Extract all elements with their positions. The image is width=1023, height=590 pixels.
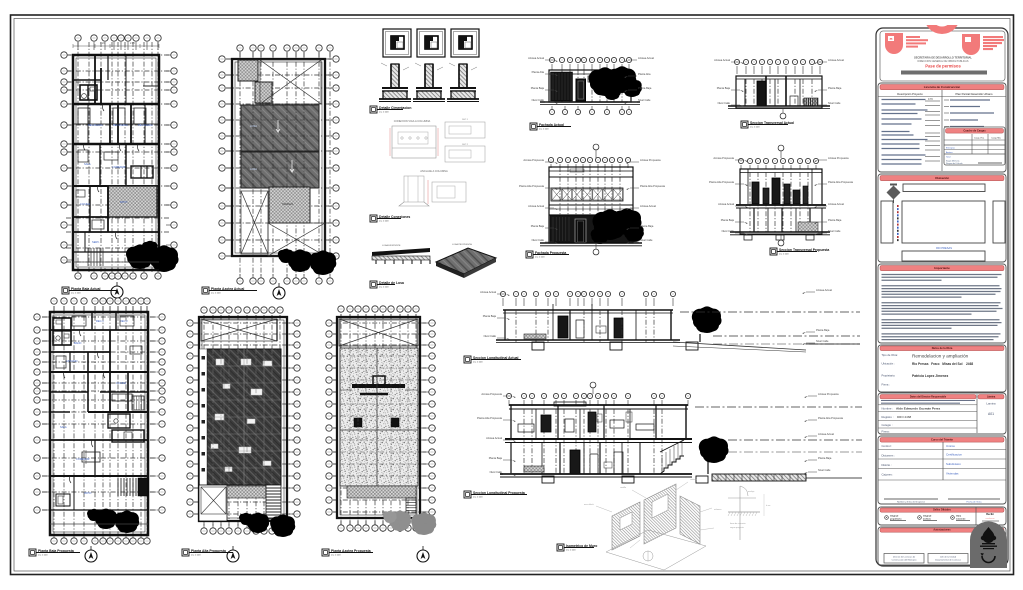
- svg-text:Lamina: Lamina: [986, 402, 996, 406]
- svg-text:Importante: Importante: [934, 266, 950, 270]
- svg-text:Detalle Conexiones: Detalle Conexiones: [379, 215, 410, 219]
- svg-text:firme de concreto: firme de concreto: [730, 522, 746, 525]
- svg-text:esc 1:100: esc 1:100: [331, 555, 341, 557]
- svg-text:LOSA EXISTENTE: LOSA EXISTENTE: [382, 244, 401, 247]
- svg-text:refuerzo: refuerzo: [714, 509, 722, 511]
- svg-text:Colegio :: Colegio :: [882, 423, 893, 427]
- svg-text:Total: Total: [946, 156, 951, 159]
- svg-text:Aldo Edmundo Guzmán Perez: Aldo Edmundo Guzmán Perez: [896, 407, 941, 411]
- svg-text:Patricia Lopez Jimenez: Patricia Lopez Jimenez: [912, 374, 949, 378]
- svg-text:RECAMARA: RECAMARA: [138, 123, 153, 127]
- svg-text:Azotea Propuesta: Azotea Propuesta: [713, 156, 734, 160]
- svg-text:muro block: muro block: [584, 504, 594, 506]
- svg-text:CONEXION VIGA A COLUMNA: CONEXION VIGA A COLUMNA: [394, 119, 431, 123]
- svg-text:esc 1:100: esc 1:100: [379, 112, 389, 114]
- svg-text:esc 1:100: esc 1:100: [379, 287, 389, 289]
- svg-text:COCINA: COCINA: [116, 381, 126, 385]
- svg-text:Dictamen :: Dictamen :: [882, 454, 896, 458]
- svg-text:SALA: SALA: [60, 425, 67, 429]
- svg-text:Sellos Oficiales: Sellos Oficiales: [933, 509, 951, 512]
- svg-text:Datos de la Obra: Datos de la Obra: [932, 346, 953, 350]
- svg-text:Unicos: Unicos: [946, 444, 955, 448]
- svg-text:Seccion Longitudinal Propuesta: Seccion Longitudinal Propuesta: [473, 491, 525, 495]
- svg-text:3.20: 3.20: [100, 42, 105, 45]
- svg-text:Azotea: Azotea: [946, 151, 953, 154]
- svg-text:Tipo de Obra:: Tipo de Obra:: [882, 353, 899, 357]
- svg-text:esc 1:100: esc 1:100: [535, 257, 545, 259]
- svg-text:Planta Alta: Planta Alta: [532, 70, 545, 74]
- svg-text:Seccion Transversal Propuesta: Seccion Transversal Propuesta: [779, 248, 829, 252]
- svg-text:0.70: 0.70: [928, 98, 933, 101]
- svg-text:esc 1:100: esc 1:100: [38, 555, 48, 557]
- svg-text:Construccion del Municipio: Construccion del Municipio: [892, 559, 918, 562]
- svg-text:Azotea Actual: Azotea Actual: [486, 436, 502, 440]
- svg-text:Nivel Calle: Nivel Calle: [490, 470, 503, 474]
- svg-text:Nivel Calle: Nivel Calle: [718, 101, 731, 105]
- svg-text:LOSA PROPUESTA: LOSA PROPUESTA: [452, 243, 472, 246]
- svg-text:Planta Alta Propuesta: Planta Alta Propuesta: [640, 184, 666, 188]
- svg-text:existente: existente: [956, 518, 966, 521]
- svg-text:Nivel Calle: Nivel Calle: [532, 98, 545, 102]
- svg-text:Lámina: Lámina: [987, 395, 996, 398]
- svg-text:Pase de permisos: Pase de permisos: [925, 64, 961, 69]
- svg-text:Plan Parcial Desarrollo Urbano: Plan Parcial Desarrollo Urbano: [956, 92, 993, 96]
- svg-text:Carga Viva: Carga Viva: [974, 137, 985, 140]
- svg-text:archivo: archivo: [923, 519, 931, 521]
- svg-text:esc 1:100: esc 1:100: [473, 497, 483, 499]
- svg-text:Original: Original: [923, 516, 932, 518]
- svg-text:SERV.: SERV.: [92, 240, 100, 244]
- svg-text:Planta Baja: Planta Baja: [721, 218, 735, 222]
- svg-text:Obra: Obra: [956, 516, 962, 518]
- svg-text:Nivel Calle: Nivel Calle: [722, 229, 735, 233]
- svg-text:Planta Baja: Planta Baja: [531, 86, 545, 90]
- svg-text:esc 1:100: esc 1:100: [539, 129, 549, 131]
- svg-text:RECAMARA: RECAMARA: [88, 123, 103, 127]
- svg-text:esc 1:100: esc 1:100: [566, 550, 576, 552]
- svg-text:esc 1:100: esc 1:100: [379, 221, 389, 223]
- svg-text:esc 1:100: esc 1:100: [191, 555, 201, 557]
- svg-text:Planta Azotea Actual: Planta Azotea Actual: [211, 287, 244, 291]
- svg-text:DET.2: DET.2: [462, 144, 469, 146]
- svg-text:A01: A01: [988, 412, 994, 416]
- svg-text:PATIO: PATIO: [84, 491, 91, 495]
- svg-text:Azotea Propuesta: Azotea Propuesta: [640, 158, 661, 162]
- svg-text:Fecha de Visita: Fecha de Visita: [966, 501, 982, 504]
- svg-text:esc 1:100: esc 1:100: [473, 362, 483, 364]
- svg-text:SALA: SALA: [84, 162, 91, 166]
- svg-text:esc 1:100: esc 1:100: [71, 293, 81, 295]
- svg-text:TERRAZA: TERRAZA: [282, 203, 294, 206]
- svg-text:Azotea Actual: Azotea Actual: [828, 58, 844, 62]
- svg-text:Planta Baja: Planta Baja: [717, 86, 731, 90]
- svg-text:esc 1:100: esc 1:100: [779, 254, 789, 256]
- svg-text:Distrito :: Distrito :: [882, 463, 892, 467]
- svg-text:Azotea Actual: Azotea Actual: [818, 432, 834, 436]
- svg-text:ANCLAJE A COLUMNA: ANCLAJE A COLUMNA: [420, 169, 448, 173]
- svg-text:SECRETARIA DE DESARROLLO TERRI: SECRETARIA DE DESARROLLO TERRITORIAL: [914, 56, 972, 60]
- svg-text:Fachada Propuesta: Fachada Propuesta: [535, 251, 566, 255]
- svg-text:Viviendas: Viviendas: [946, 472, 959, 476]
- svg-text:Azotea Actual: Azotea Actual: [828, 202, 844, 206]
- svg-text:esc 1:100: esc 1:100: [750, 127, 760, 129]
- svg-text:LOSA: LOSA: [250, 167, 257, 171]
- svg-text:Nivel Calle: Nivel Calle: [828, 229, 841, 233]
- svg-text:Planta Alta Propuesta: Planta Alta Propuesta: [709, 180, 735, 184]
- svg-text:Original: Original: [890, 516, 899, 518]
- svg-text:Nivel Calle: Nivel Calle: [484, 334, 497, 338]
- svg-text:Azotea Actual: Azotea Actual: [640, 204, 656, 208]
- svg-text:Planta Alta Propuesta: Planta Alta Propuesta: [519, 184, 545, 188]
- svg-text:Seccion Transversal Actual: Seccion Transversal Actual: [750, 121, 794, 125]
- svg-text:Planta Baja: Planta Baja: [638, 86, 652, 90]
- svg-text:Detalle de Losa: Detalle de Losa: [379, 281, 404, 285]
- svg-text:Azotea Propuesta: Azotea Propuesta: [481, 392, 502, 396]
- svg-text:castillo: castillo: [620, 486, 627, 489]
- svg-text:Autorizaciones: Autorizaciones: [933, 529, 951, 532]
- svg-text:Planta Alta Propuesta: Planta Alta Propuesta: [818, 416, 844, 420]
- svg-text:Respon del Calculo: Respon del Calculo: [946, 163, 962, 165]
- svg-text:Planta Alta Propuesta: Planta Alta Propuesta: [191, 549, 226, 553]
- svg-text:Nivel Calle: Nivel Calle: [818, 468, 831, 472]
- svg-text:DRO 2468: DRO 2468: [897, 415, 912, 419]
- svg-text:Recibí: Recibí: [986, 513, 994, 516]
- svg-text:Nivel Calle: Nivel Calle: [532, 238, 545, 242]
- svg-text:h var: h var: [766, 505, 771, 507]
- svg-text:Departamental de Licencias: Departamental de Licencias: [935, 559, 961, 562]
- svg-text:Ubicación: Ubicación: [935, 176, 950, 180]
- svg-text:ESTUDIO: ESTUDIO: [66, 359, 78, 363]
- svg-text:Planta Azotea Propuesta: Planta Azotea Propuesta: [331, 549, 371, 553]
- svg-text:REC.2: REC.2: [120, 319, 128, 323]
- svg-text:Descripción Proyecto: Descripción Proyecto: [897, 92, 923, 96]
- svg-text:Rio Presas Fracc Misas del: Rio Presas Fracc Misas del Sol 2468: [912, 362, 973, 366]
- svg-text:Licencia de Construccion: Licencia de Construccion: [924, 85, 961, 89]
- svg-text:Azotea Propuesta: Azotea Propuesta: [523, 158, 544, 162]
- svg-text:Seccion Longitudinal Actual: Seccion Longitudinal Actual: [473, 356, 519, 360]
- svg-text:COCINA: COCINA: [80, 202, 90, 206]
- svg-text:Firma :: Firma :: [882, 430, 891, 434]
- svg-text:Jefe de la Unidad: Jefe de la Unidad: [940, 557, 957, 559]
- svg-text:RIO PRESAS: RIO PRESAS: [936, 246, 952, 250]
- svg-text:Subdivision: Subdivision: [946, 462, 961, 466]
- svg-text:Azotea Actual: Azotea Actual: [816, 288, 832, 292]
- svg-text:Nivel Calle: Nivel Calle: [816, 339, 829, 343]
- svg-text:Planta Baja: Planta Baja: [640, 224, 654, 228]
- svg-text:Certificacion: Certificacion: [946, 453, 962, 457]
- svg-text:Propietario:: Propietario:: [882, 374, 896, 378]
- svg-text:Fachada Actual: Fachada Actual: [539, 123, 564, 127]
- svg-text:Control :: Control :: [882, 444, 893, 448]
- svg-text:Planta Baja: Planta Baja: [828, 218, 842, 222]
- svg-text:Planta Baja: Planta Baja: [818, 456, 832, 460]
- svg-text:Detalle Cimentacion: Detalle Cimentacion: [379, 106, 411, 110]
- svg-text:Planta Baja Propuesta: Planta Baja Propuesta: [38, 549, 74, 553]
- svg-text:Firma :: Firma :: [882, 383, 891, 387]
- svg-text:Planta Baja: Planta Baja: [489, 456, 503, 460]
- svg-text:PATIO: PATIO: [120, 200, 127, 204]
- svg-text:segun proyecto: segun proyecto: [730, 526, 745, 529]
- svg-text:Azotea Propuesta: Azotea Propuesta: [818, 392, 839, 396]
- svg-text:LOSA: LOSA: [250, 124, 257, 128]
- svg-text:Azotea Actual: Azotea Actual: [528, 56, 544, 60]
- svg-text:Entrepiso: Entrepiso: [946, 147, 956, 150]
- svg-text:Datos del Director Responsable: Datos del Director Responsable: [910, 395, 947, 398]
- svg-text:COMEDOR: COMEDOR: [112, 165, 126, 169]
- svg-text:Carga Mta: Carga Mta: [991, 137, 1002, 140]
- svg-text:Planta Baja: Planta Baja: [828, 86, 842, 90]
- svg-text:Azotea Propuesta: Azotea Propuesta: [828, 156, 849, 160]
- svg-text:Azotea Actual: Azotea Actual: [528, 204, 544, 208]
- svg-text:DET.1: DET.1: [462, 119, 469, 121]
- svg-text:Registro :: Registro :: [882, 415, 894, 419]
- svg-text:Remodelacion y ampliación: Remodelacion y ampliación: [912, 354, 969, 359]
- svg-text:cadena: cadena: [690, 479, 697, 481]
- svg-text:conforme: conforme: [985, 517, 995, 520]
- svg-text:Azotea Actual: Azotea Actual: [718, 202, 734, 206]
- svg-text:Nivel Calle: Nivel Calle: [638, 98, 651, 102]
- svg-text:Azotea Actual: Azotea Actual: [480, 290, 496, 294]
- svg-text:Nivel Calle: Nivel Calle: [640, 238, 653, 242]
- svg-text:RECAMARA: RECAMARA: [113, 123, 128, 127]
- svg-text:anclaje: anclaje: [748, 491, 755, 493]
- svg-text:Nombre y firma del Inspector: Nombre y firma del Inspector: [897, 501, 925, 504]
- svg-text:Planta Alta Propuesta: Planta Alta Propuesta: [477, 416, 503, 420]
- svg-text:Director de Licencias de: Director de Licencias de: [893, 556, 916, 559]
- svg-text:2.85: 2.85: [130, 42, 135, 45]
- svg-text:Planta Baja: Planta Baja: [531, 224, 545, 228]
- svg-text:Planta Baja Actual: Planta Baja Actual: [71, 287, 101, 291]
- svg-text:esc 1:100: esc 1:100: [211, 293, 221, 295]
- svg-text:Nivel Calle: Nivel Calle: [828, 101, 841, 105]
- svg-text:Isometrico de Muro: Isometrico de Muro: [566, 544, 597, 548]
- svg-text:Planta Alta Propuesta: Planta Alta Propuesta: [828, 180, 854, 184]
- svg-text:Azotea Actual: Azotea Actual: [638, 56, 654, 60]
- svg-text:Cuadro de Cargas: Cuadro de Cargas: [963, 129, 986, 133]
- svg-text:Curso del Trámite: Curso del Trámite: [931, 438, 953, 442]
- svg-text:REC.1: REC.1: [96, 319, 104, 323]
- svg-text:Ubicación :: Ubicación :: [882, 362, 896, 366]
- svg-text:propietario: propietario: [890, 518, 902, 521]
- svg-text:Planta Baja: Planta Baja: [483, 314, 497, 318]
- svg-text:Azotea Actual: Azotea Actual: [714, 58, 730, 62]
- svg-text:Cajones :: Cajones :: [882, 473, 894, 477]
- svg-text:Planta Baja: Planta Baja: [816, 328, 830, 332]
- svg-text:Nombre :: Nombre :: [882, 407, 894, 411]
- svg-text:COMEDOR: COMEDOR: [76, 457, 90, 461]
- svg-text:Planta Alta: Planta Alta: [638, 72, 651, 76]
